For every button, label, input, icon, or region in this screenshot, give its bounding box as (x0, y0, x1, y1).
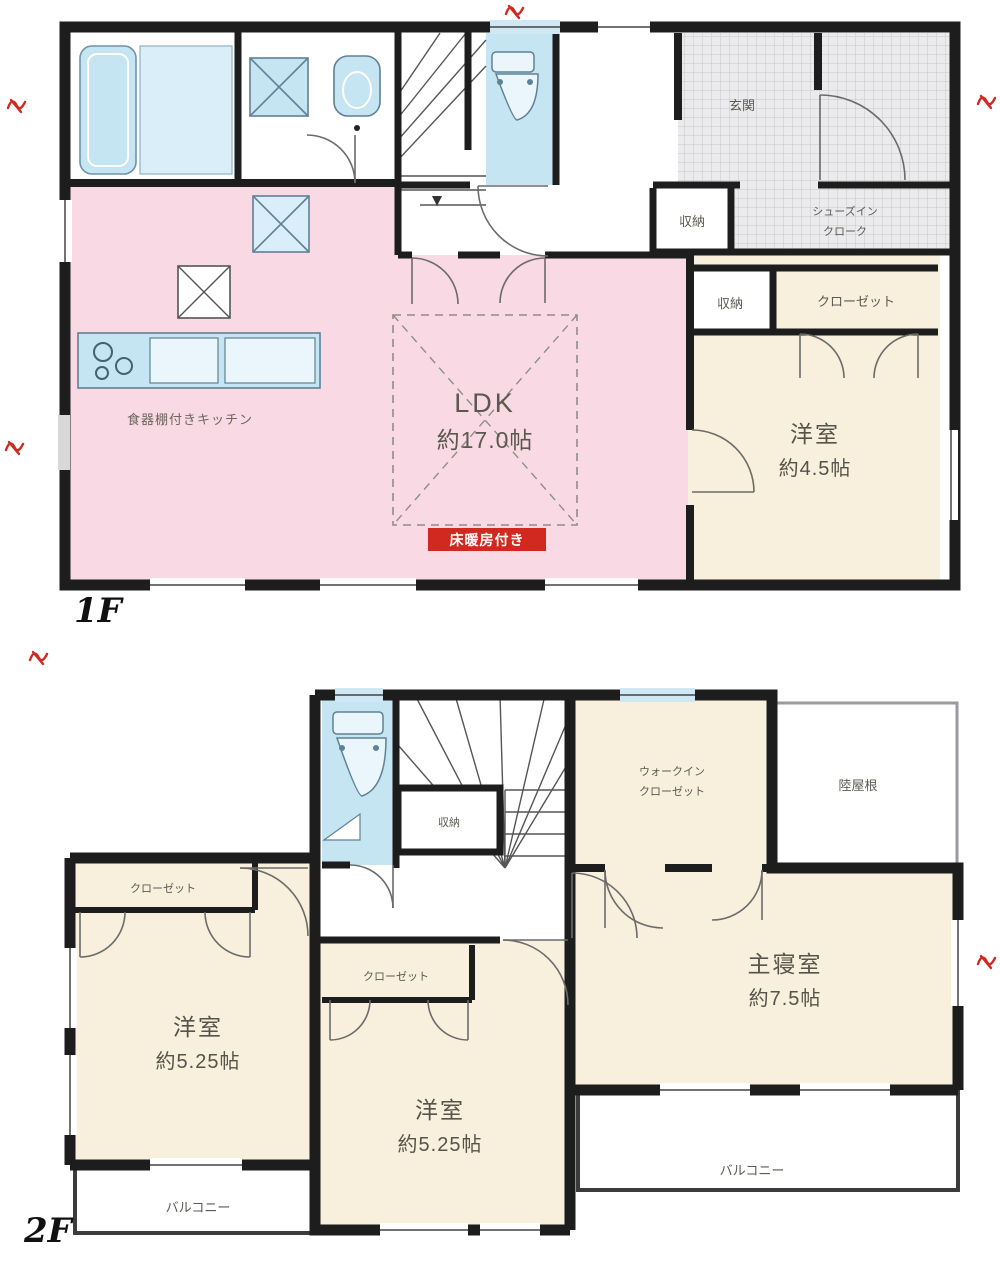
master-bedroom-label: 主寝室 (748, 951, 823, 977)
genkan-label: 玄関 (729, 98, 755, 113)
f2-balcony-left (75, 1165, 313, 1233)
f2-master-floor (572, 868, 960, 1090)
floor-1f: LDK 約17.0帖 食器棚付きキッチン 床暖房付き 洋室 約4.5帖 クローゼ… (58, 20, 958, 631)
balcony-left-label: バルコニー (166, 1200, 231, 1215)
f2-wic-floor (572, 698, 772, 870)
bathtub-icon (80, 46, 232, 174)
f2-closet-center-label: クローゼット (363, 970, 429, 983)
f2-room-center-label: 洋室 (415, 1097, 465, 1123)
f2-room-left-size-label: 約5.25帖 (156, 1050, 241, 1073)
floor-2f-label: 2F (23, 1211, 75, 1251)
shoes-closet-label-1: シューズイン (812, 204, 877, 218)
red-badge-label: 床暖房付き (450, 532, 525, 548)
f1-bedroom-size-label: 約4.5帖 (779, 457, 852, 480)
floor-2f: ウォークイン クローゼット 陸屋根 主寝室 約7.5帖 洋室 約5.25帖 洋室… (23, 688, 965, 1251)
stairs-1f (398, 33, 486, 206)
red-badge: 床暖房付き (428, 528, 546, 551)
f2-room-center-size-label: 約5.25帖 (398, 1133, 483, 1156)
wic-label-1: ウォークイン (639, 765, 705, 778)
shoes-closet-label-2: クローク (823, 225, 867, 238)
f1-storage-b-label: 収納 (717, 296, 743, 311)
f2-hall (315, 868, 572, 940)
f2-room-center-floor (315, 940, 572, 1230)
washing-machine-icon (250, 58, 308, 116)
floor-1f-label: 1F (74, 591, 125, 631)
f1-closet-label: クローゼット (817, 294, 895, 309)
back-door (58, 415, 70, 470)
f1-bedroom-label: 洋室 (790, 421, 840, 447)
red-annotation-mark (6, 442, 23, 454)
ldk-label: LDK (454, 388, 516, 418)
balcony-right-label: バルコニー (720, 1163, 785, 1178)
red-annotation-mark (978, 96, 995, 108)
ldk-size-label: 約17.0帖 (437, 427, 534, 453)
kitchen-note-label: 食器棚付きキッチン (127, 412, 253, 427)
cupboard-icon-a (253, 196, 309, 252)
red-annotation-mark (978, 956, 995, 968)
wic-label-2: クローゼット (639, 785, 705, 798)
master-bedroom-size-label: 約7.5帖 (749, 987, 822, 1010)
cupboard-icon-b (178, 266, 230, 318)
f1-shoes-closet-floor (735, 185, 952, 252)
f2-closet-left-label: クローゼット (130, 882, 196, 895)
f1-storage-a-label: 収納 (679, 214, 705, 229)
red-annotation-mark (8, 100, 25, 112)
f2-room-left-label: 洋室 (173, 1014, 223, 1040)
floorplan-page: LDK 約17.0帖 食器棚付きキッチン 床暖房付き 洋室 約4.5帖 クローゼ… (0, 0, 1000, 1286)
kitchen-counter-icon (78, 333, 320, 388)
f2-storage-label: 収納 (438, 816, 460, 829)
f2-room-left-floor (70, 858, 315, 1165)
roof-label: 陸屋根 (838, 778, 877, 793)
red-annotation-mark (506, 6, 523, 18)
red-annotation-mark (30, 652, 47, 664)
floorplan-svg: LDK 約17.0帖 食器棚付きキッチン 床暖房付き 洋室 約4.5帖 クローゼ… (0, 0, 1000, 1286)
